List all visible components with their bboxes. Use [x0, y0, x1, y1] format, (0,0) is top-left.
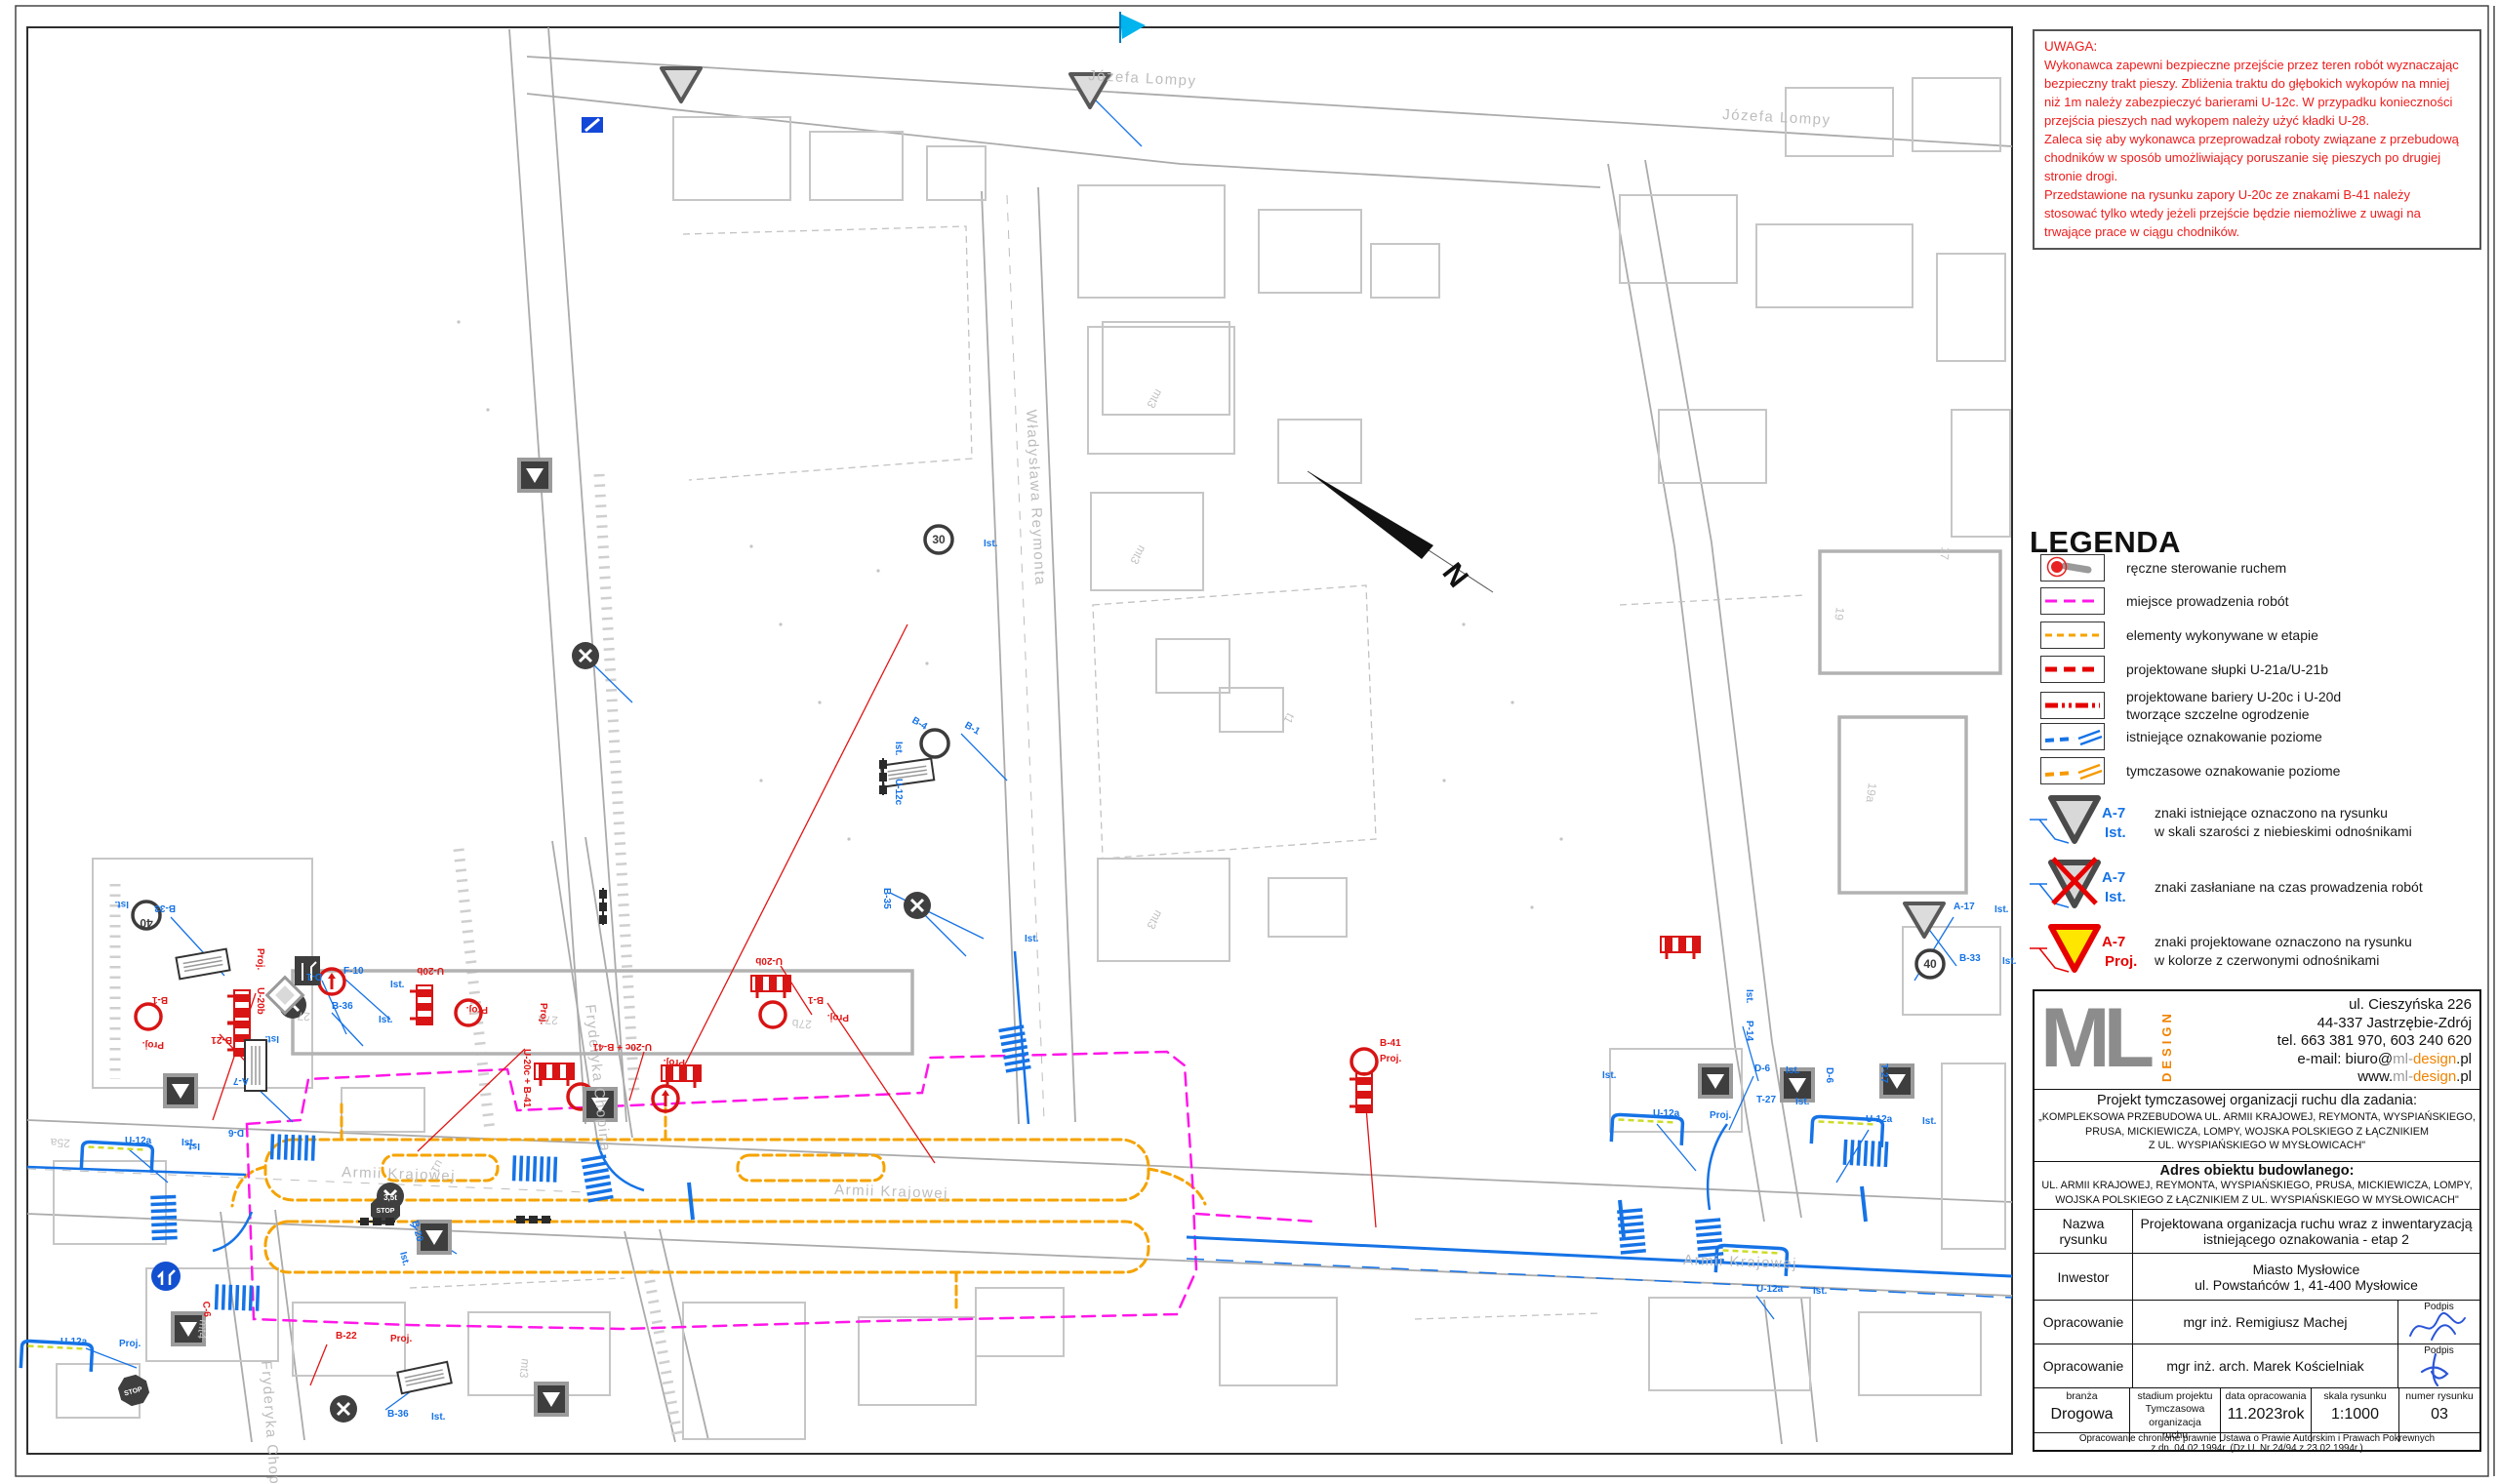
legend-item-designed-signs: A-7 Proj. znaki projektowane oznaczono n…: [2028, 919, 2412, 983]
sign-annotation: Ist.: [1922, 1116, 1937, 1127]
signature-2: [2402, 1352, 2480, 1387]
cross-symbol: [1844, 1140, 1886, 1167]
title-block: ML DESIGN ul. Cieszyńska 226 44-337 Jast…: [2033, 989, 2481, 1452]
sign-annotation: Ist.: [1994, 904, 2009, 915]
dot-symbol: [818, 701, 821, 703]
sign-annotation: U-20b: [417, 965, 444, 976]
sign-annotation: D-1: [305, 971, 322, 982]
sign-annotation: Ist.: [1602, 1070, 1617, 1081]
sign-annotation: Proj.: [142, 1039, 164, 1050]
existing-sign-icon: A-7 Ist.: [2028, 790, 2147, 855]
sign-annotation: B-1: [151, 994, 168, 1005]
building-label: 19a: [1864, 782, 1879, 804]
legend-item-work-area: miejsce prowadzenia robót: [2040, 587, 2289, 615]
project-label: Projekt tymczasowej organizacji ruchu dl…: [2035, 1093, 2479, 1108]
sign-annotation: D-6: [1754, 1063, 1771, 1074]
sign-annotation: U-20c + B-41: [521, 1049, 532, 1108]
sign-annotation: B-41: [1380, 1038, 1401, 1049]
legend-item-existing-marking: istniejące oznakowanie poziome: [2040, 723, 2322, 750]
sign-annotation: B-35: [881, 888, 892, 909]
warning-note-line: Przedstawione na rysunku zapory U-20c ze…: [2044, 185, 2470, 204]
sign-annotation: F-10: [343, 966, 364, 977]
sign-annotation: Proj.: [390, 1334, 412, 1344]
company-block: ML DESIGN ul. Cieszyńska 226 44-337 Jast…: [2035, 991, 2479, 1089]
sign-annotation: B-33: [154, 902, 176, 913]
svg-text:Proj.: Proj.: [2105, 953, 2137, 970]
sign-annotation: D-6: [1824, 1067, 1834, 1084]
u12c-symbol: [514, 1216, 551, 1223]
author-1-name: mgr inż. Remigiusz Machej: [2132, 1301, 2397, 1344]
dot-symbol: [457, 320, 460, 323]
sign-annotation: Ist.: [1025, 934, 1039, 944]
author-row-1: Opracowanie mgr inż. Remigiusz Machej Po…: [2035, 1300, 2479, 1344]
u12c-symbol: [879, 758, 887, 795]
sign-annotation: Ist.: [1744, 989, 1754, 1004]
building-label: 27b: [791, 1017, 812, 1031]
sign-annotation: Proj.: [538, 1003, 548, 1024]
signature-1: [2402, 1308, 2480, 1344]
warning-note-lines: Wykonawca zapewni bezpieczne przejście p…: [2044, 56, 2470, 241]
cross-symbol: [150, 1197, 177, 1239]
sign-annotation: Ist.: [181, 1138, 196, 1148]
manual-control-icon: [2040, 554, 2105, 582]
sign-annotation: Ist.: [1795, 1097, 1810, 1107]
warning-note-line: Wykonawca zapewni bezpieczne przejście p…: [2044, 56, 2470, 74]
dot-symbol: [1442, 779, 1445, 782]
darksq-symbol: [536, 1384, 567, 1415]
metadata-row: branżaDrogowa stadium projektuTymczasowa…: [2035, 1387, 2479, 1432]
dot-symbol: [749, 544, 752, 547]
signature-cell-1: Podpis: [2397, 1301, 2479, 1344]
author-row-2: Opracowanie mgr inż. arch. Marek Kościel…: [2035, 1344, 2479, 1387]
sign-annotation: Proj.: [1710, 1110, 1731, 1121]
company-address: ul. Cieszyńska 226 44-337 Jastrzębie-Zdr…: [2277, 996, 2472, 1087]
legend-item-existing-signs: A-7 Ist. znaki istniejące oznaczono na r…: [2028, 790, 2412, 855]
sign-annotation: Proj.: [664, 1057, 685, 1067]
dot-symbol: [925, 662, 928, 664]
cross-symbol: [217, 1284, 259, 1310]
building-label: mt4: [195, 1319, 211, 1341]
author-2-name: mgr inż. arch. Marek Kościelniak: [2132, 1344, 2397, 1387]
sign-annotation: T-27: [1756, 1095, 1776, 1105]
sign-annotation: U-12c: [893, 779, 904, 806]
warning-note-line: stronie drogi.: [2044, 167, 2470, 185]
sign-annotation: 40: [1923, 957, 1937, 971]
sign-annotation: Ist.: [1786, 1065, 1800, 1076]
work-area-line-icon: [2040, 587, 2105, 615]
posts-line-icon: [2040, 656, 2105, 683]
sign-annotation: Proj.: [255, 948, 265, 970]
sign-annotation: Proj.: [466, 1004, 488, 1015]
temporary-marking-line-icon: [2040, 757, 2105, 784]
sign-annotation: U-12a: [1866, 1114, 1893, 1125]
sign-annotation: Ist.: [1813, 1286, 1828, 1297]
sign-annotation: U-12a: [1653, 1108, 1680, 1119]
sign-annotation: U-12a: [1756, 1284, 1784, 1295]
site-address-row: Adres obiektu budowlanego: UL. ARMII KRA…: [2035, 1161, 2479, 1209]
sign-annotation: T-27: [1878, 1063, 1889, 1083]
legend-item-barriers: projektowane bariery U-20c i U-20dtworzą…: [2040, 688, 2341, 723]
svg-text:A-7: A-7: [2102, 805, 2125, 822]
sign-annotation: Ist.: [114, 899, 129, 909]
investor-value: Miasto Mysłowiceul. Powstańców 1, 41-400…: [2132, 1254, 2479, 1300]
darksq-symbol: [519, 460, 550, 491]
designed-sign-icon: A-7 Proj.: [2028, 919, 2147, 983]
logo-ml-text: ML: [2040, 991, 2148, 1085]
warning-note-line: trwające prace w ciągu chodników.: [2044, 222, 2470, 241]
dot-symbol: [876, 569, 879, 572]
darkring-symbol: [921, 730, 948, 757]
sign-annotation: Ist.: [390, 980, 405, 990]
legend-item-posts: projektowane słupki U-21a/U-21b: [2040, 656, 2328, 683]
dot-symbol: [1530, 905, 1533, 908]
dot-symbol: [486, 408, 489, 411]
warning-note-line: przejścia pieszych nad wykopem należy uż…: [2044, 111, 2470, 130]
copyright-row: Opracowanie chronione prawnie Ustawa o P…: [2035, 1432, 2479, 1452]
cross-symbol: [514, 1155, 556, 1182]
sign-annotation: 30: [932, 533, 946, 546]
darkdisc-symbol: [330, 1395, 357, 1423]
warning-note-line: chodników w sposób umożliwiający porusza…: [2044, 148, 2470, 167]
company-email: e-mail: biuro@ml-design.pl: [2277, 1051, 2472, 1069]
sign-annotation: B-36: [387, 1409, 409, 1420]
sign-annotation: Ist.: [893, 742, 904, 756]
darkdisc-symbol: [572, 642, 599, 669]
building-label: mt3: [517, 1358, 533, 1380]
sign-annotation: STOP: [377, 1208, 395, 1215]
investor-row: Inwestor Miasto Mysłowiceul. Powstańców …: [2035, 1253, 2479, 1300]
darksq-symbol: [1700, 1065, 1731, 1097]
warning-note-line: Zaleca się aby wykonawca przeprowadzał r…: [2044, 130, 2470, 148]
u12c-symbol: [358, 1218, 395, 1225]
sign-annotation: Proj.: [1380, 1054, 1401, 1064]
covered-sign-icon: A-7 Ist.: [2028, 855, 2147, 919]
company-logo: ML: [2040, 991, 2148, 1085]
warning-note-line: niż 1m należy zabezpieczyć barierami U-1…: [2044, 93, 2470, 111]
sign-annotation: B-22: [336, 1331, 357, 1342]
warning-note-box: UWAGA: Wykonawca zapewni bezpieczne prze…: [2033, 29, 2481, 250]
sign-annotation: Proj.: [119, 1339, 141, 1349]
svg-text:A-7: A-7: [2102, 934, 2125, 950]
sign-annotation: U-20b: [755, 955, 783, 966]
sign-annotation: A-7: [232, 1075, 249, 1086]
existing-marking-line-icon: [2040, 723, 2105, 750]
dot-symbol: [1559, 837, 1562, 840]
sign-annotation: U-20b: [255, 987, 265, 1015]
svg-text:A-7: A-7: [2102, 869, 2125, 886]
sign-annotation: Proj.: [827, 1012, 849, 1023]
building-label: 27: [297, 1009, 310, 1023]
darkdisc-symbol: [904, 892, 931, 919]
building-label: 25a: [50, 1136, 70, 1150]
dot-symbol: [779, 622, 782, 625]
dot-symbol: [847, 837, 850, 840]
legend-item-manual-control: ręczne sterowanie ruchem: [2040, 554, 2286, 582]
sign-annotation: B-33: [1959, 953, 1981, 964]
sign-annotation: B-1: [807, 994, 824, 1005]
dot-symbol: [1462, 622, 1465, 625]
sign-annotation: Ist.: [379, 1015, 393, 1025]
sign-annotation: Ist.: [2002, 956, 2017, 967]
company-website: www.ml-design.pl: [2277, 1068, 2472, 1087]
sign-annotation: 40: [140, 916, 153, 930]
barriers-line-icon: [2040, 692, 2105, 719]
sign-annotation: B-21: [211, 1034, 232, 1045]
dot-symbol: [759, 779, 762, 782]
sign-annotation: 3,5t: [383, 1193, 397, 1202]
logo-design-text: DESIGN: [2159, 998, 2174, 1082]
svg-text:Ist.: Ist.: [2105, 889, 2126, 905]
c6-symbol: [151, 1262, 181, 1291]
legend-item-stage-elements: elementy wykonywane w etapie: [2040, 622, 2318, 649]
cross-symbol: [272, 1134, 314, 1160]
bluebar-symbol: [582, 117, 603, 133]
darksq-symbol: [165, 1075, 196, 1106]
u12c-symbol: [599, 888, 607, 925]
sign-annotation: U-12a: [125, 1136, 152, 1146]
sign-annotation: U-20c + B-41: [592, 1041, 652, 1052]
drawing-sheet: { "notes": { "title": "UWAGA:", "lines":…: [0, 0, 2498, 1484]
sign-annotation: U-12a: [60, 1337, 88, 1347]
svg-text:Ist.: Ist.: [2105, 824, 2126, 841]
site-address-label: Adres obiektu budowlanego:: [2035, 1163, 2479, 1179]
building-label: 17: [1937, 546, 1953, 561]
sign-annotation: A-17: [1954, 902, 1975, 912]
sign-annotation: Ist.: [431, 1412, 446, 1423]
stage-elements-line-icon: [2040, 622, 2105, 649]
dot-symbol: [1511, 701, 1513, 703]
project-title-row: Projekt tymczasowej organizacji ruchu dl…: [2035, 1089, 2479, 1161]
sign-annotation: Ist.: [264, 1033, 279, 1044]
sign-annotation: B-36: [332, 1001, 353, 1012]
sign-annotation: C-6: [200, 1301, 212, 1317]
sign-annotation: P-14: [1744, 1021, 1754, 1042]
warning-note-line: stosować tylko wtedy jeżeli przejście bę…: [2044, 204, 2470, 222]
building-label: 19: [1832, 607, 1847, 622]
warning-note-line: bezpieczny trakt pieszy. Zbliżenia trakt…: [2044, 74, 2470, 93]
sign-annotation: D-6: [227, 1127, 244, 1138]
warning-note-title: UWAGA:: [2044, 37, 2470, 56]
sign-annotation: Ist.: [984, 539, 998, 549]
drawing-name-value: Projektowana organizacja ruchu wraz z in…: [2132, 1210, 2479, 1253]
signature-cell-2: Podpis: [2397, 1344, 2479, 1387]
legend-item-temporary-marking: tymczasowe oznakowanie poziome: [2040, 757, 2340, 784]
legend-item-covered-signs: A-7 Ist. znaki zasłaniane na czas prowad…: [2028, 855, 2423, 919]
drawing-name-row: Nazwarysunku Projektowana organizacja ru…: [2035, 1209, 2479, 1253]
